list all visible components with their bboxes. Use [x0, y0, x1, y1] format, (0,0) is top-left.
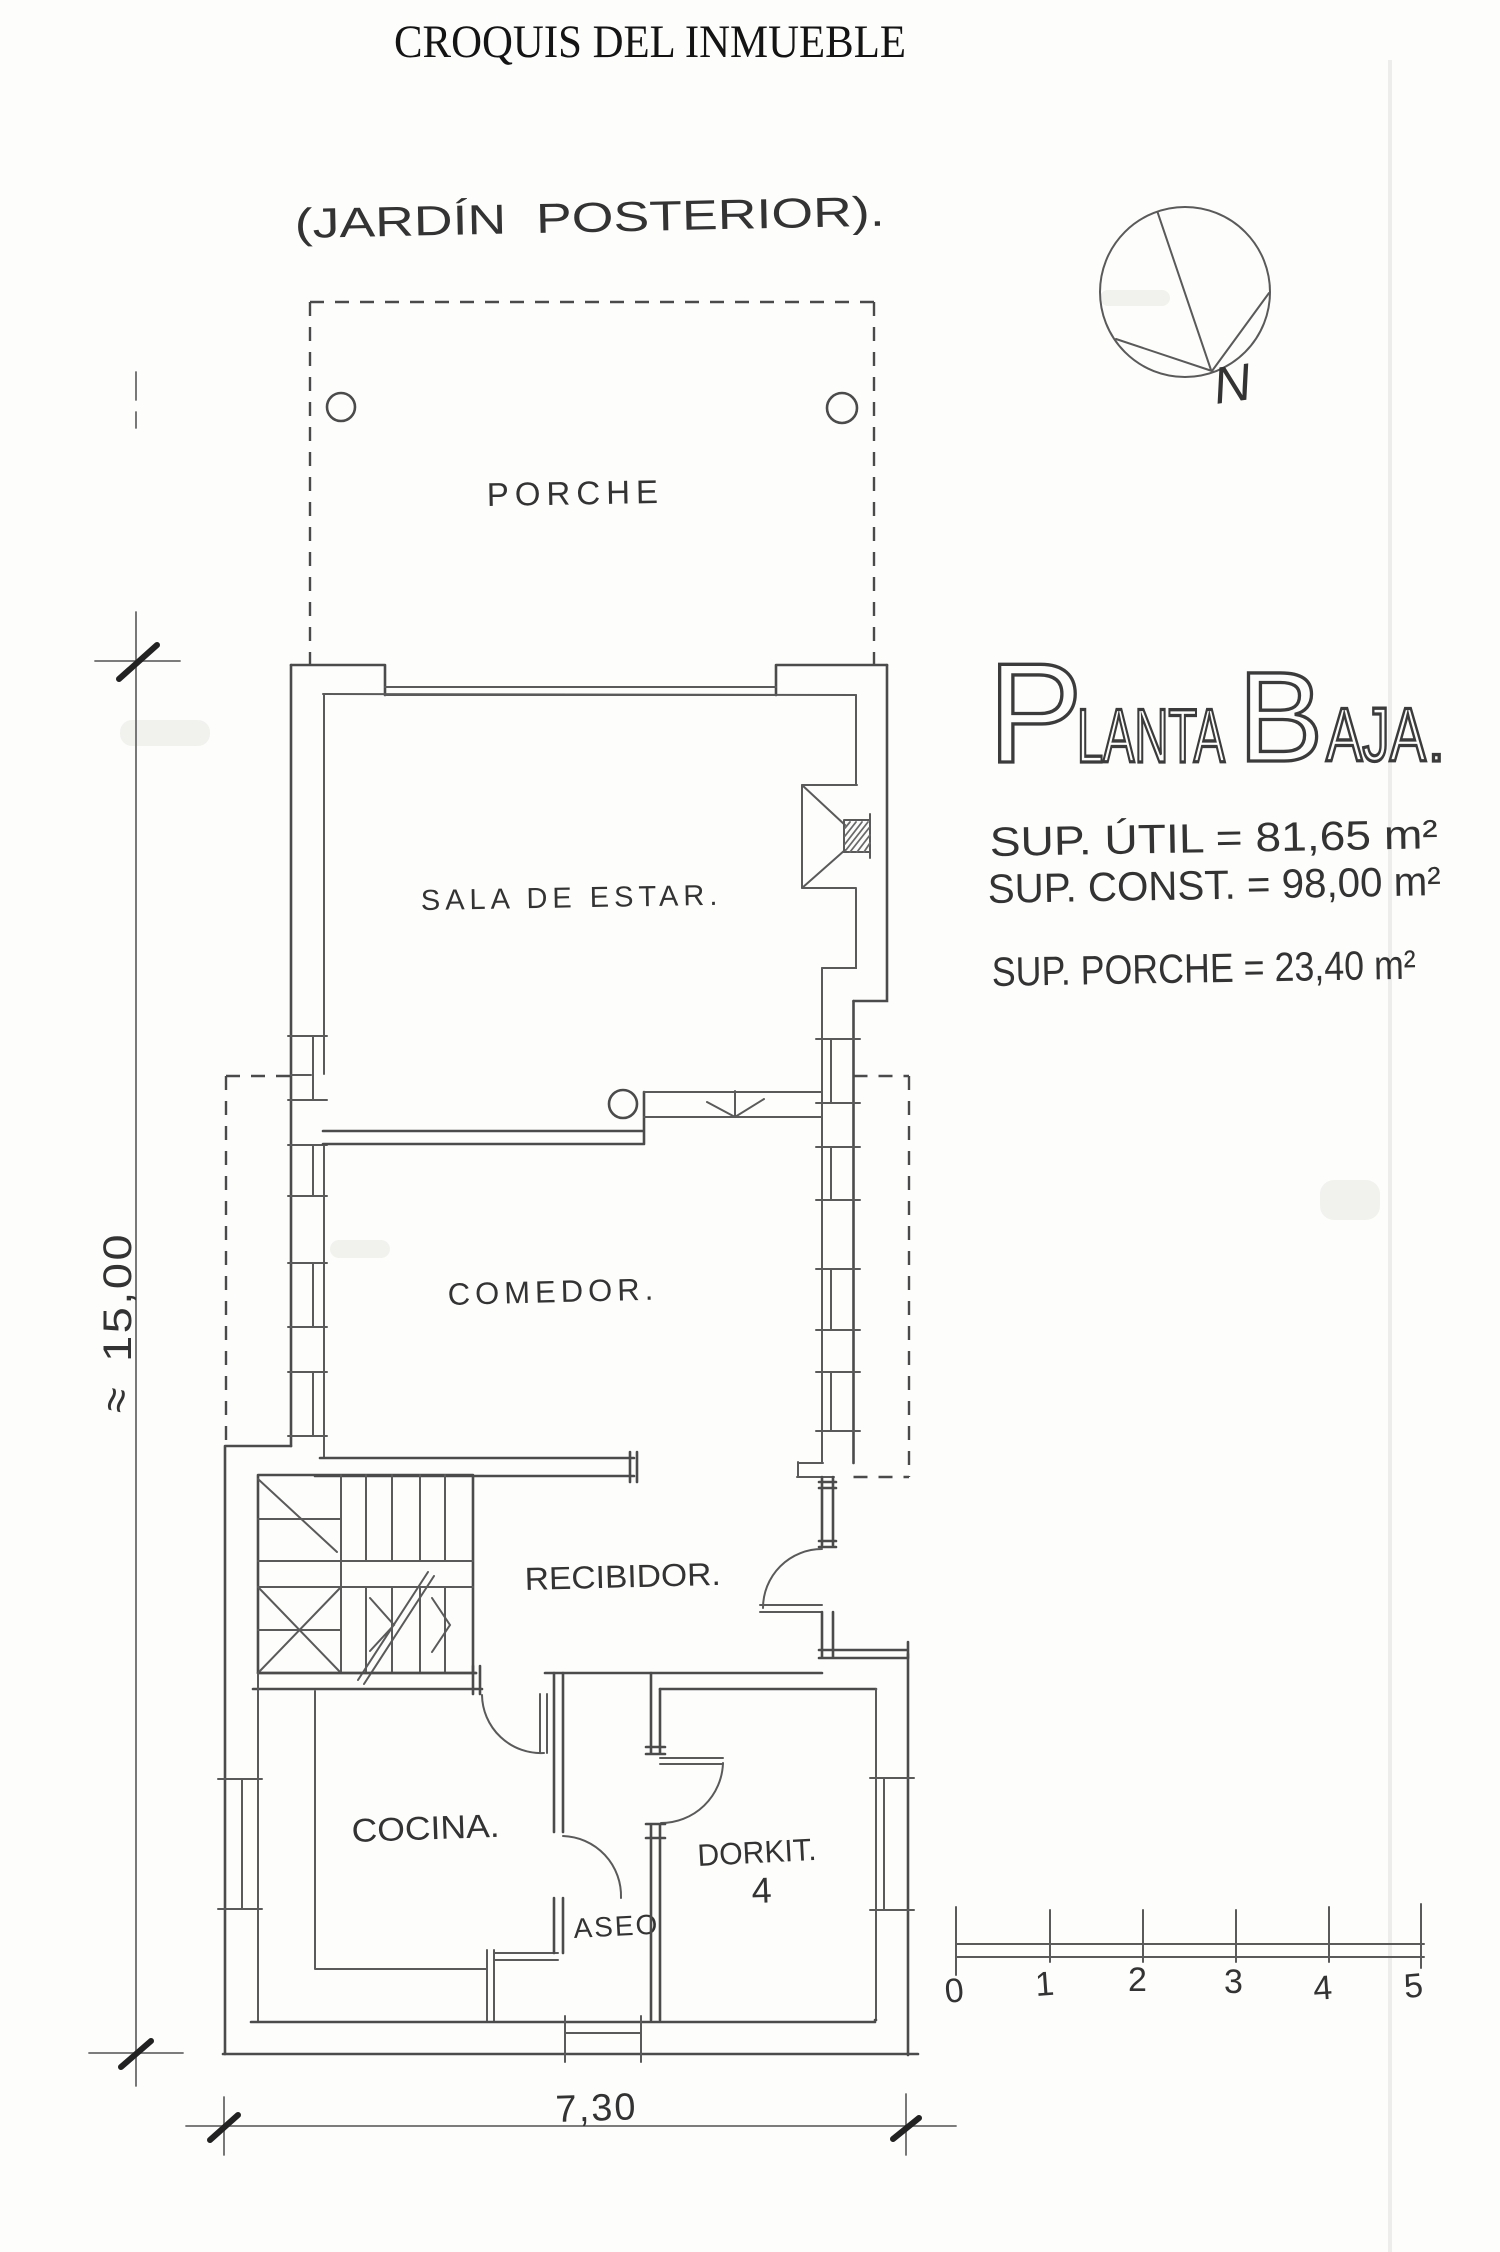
- svg-text:SUP. CONST. = 98,00 m²: SUP. CONST. = 98,00 m²: [987, 858, 1441, 912]
- svg-text:2: 2: [1128, 1961, 1147, 1999]
- svg-text:AJA: AJA: [1326, 693, 1426, 778]
- svg-text:P: P: [988, 634, 1083, 793]
- svg-text:3: 3: [1224, 1963, 1243, 2001]
- svg-text:0: 0: [943, 1971, 966, 2011]
- svg-text:COMEDOR.: COMEDOR.: [447, 1271, 658, 1311]
- svg-text:ASEO: ASEO: [573, 1909, 660, 1944]
- svg-text:4: 4: [1312, 1969, 1334, 2008]
- svg-text:LANTA: LANTA: [1077, 694, 1225, 779]
- svg-text:SALA DE ESTAR.: SALA DE ESTAR.: [421, 880, 723, 917]
- svg-text:7,30: 7,30: [555, 2086, 638, 2131]
- svg-text:RECIBIDOR.: RECIBIDOR.: [524, 1556, 721, 1597]
- svg-text:.: .: [1428, 707, 1445, 774]
- svg-text:4: 4: [751, 1869, 772, 1911]
- svg-text:PORCHE: PORCHE: [486, 473, 664, 513]
- svg-text:B: B: [1238, 646, 1323, 789]
- svg-text:CROQUIS DEL INMUEBLE: CROQUIS DEL INMUEBLE: [394, 16, 906, 68]
- svg-text:SUP. ÚTIL = 81,65 m²: SUP. ÚTIL = 81,65 m²: [989, 811, 1438, 865]
- svg-text:SUP. PORCHE = 23,40 m²: SUP. PORCHE = 23,40 m²: [991, 942, 1416, 995]
- svg-text:1: 1: [1034, 1965, 1056, 2004]
- svg-text:COCINA.: COCINA.: [351, 1807, 500, 1849]
- svg-text:5: 5: [1402, 1966, 1424, 2006]
- svg-text:DORKIT.: DORKIT.: [697, 1832, 818, 1873]
- svg-text:15,00: 15,00: [96, 1232, 140, 1362]
